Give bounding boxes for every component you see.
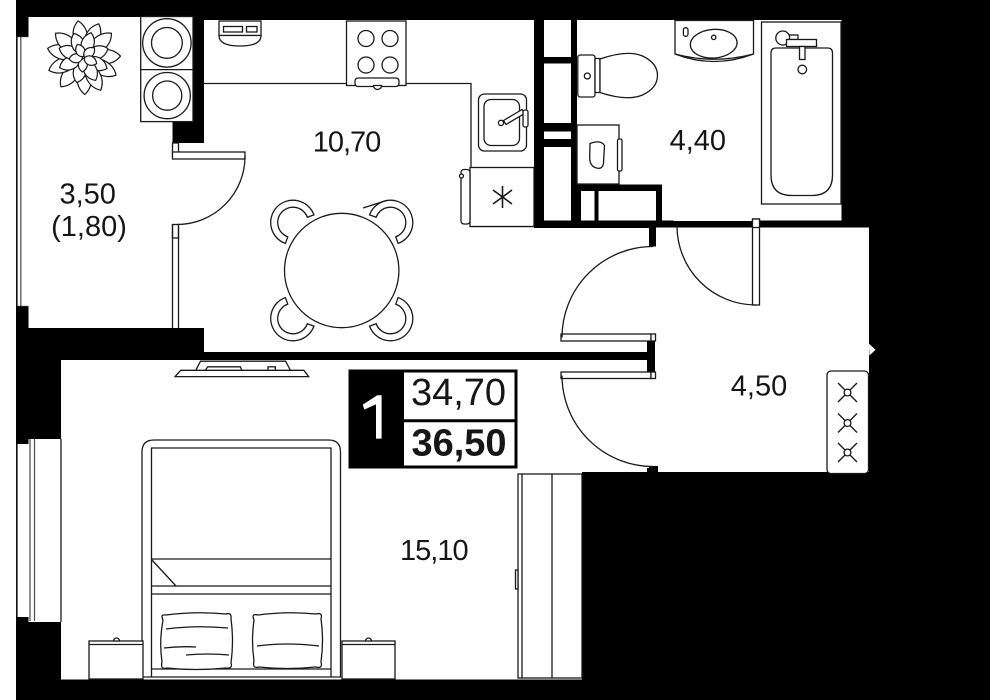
svg-text:15,10: 15,10 — [400, 535, 468, 567]
svg-text:34,70: 34,70 — [411, 372, 506, 414]
svg-text:3,50: 3,50 — [59, 179, 115, 211]
svg-text:(1,80): (1,80) — [51, 211, 127, 243]
svg-text:4,50: 4,50 — [731, 371, 787, 403]
svg-text:36,50: 36,50 — [411, 423, 506, 465]
svg-text:4,40: 4,40 — [670, 125, 726, 157]
svg-text:10,70: 10,70 — [313, 127, 381, 159]
